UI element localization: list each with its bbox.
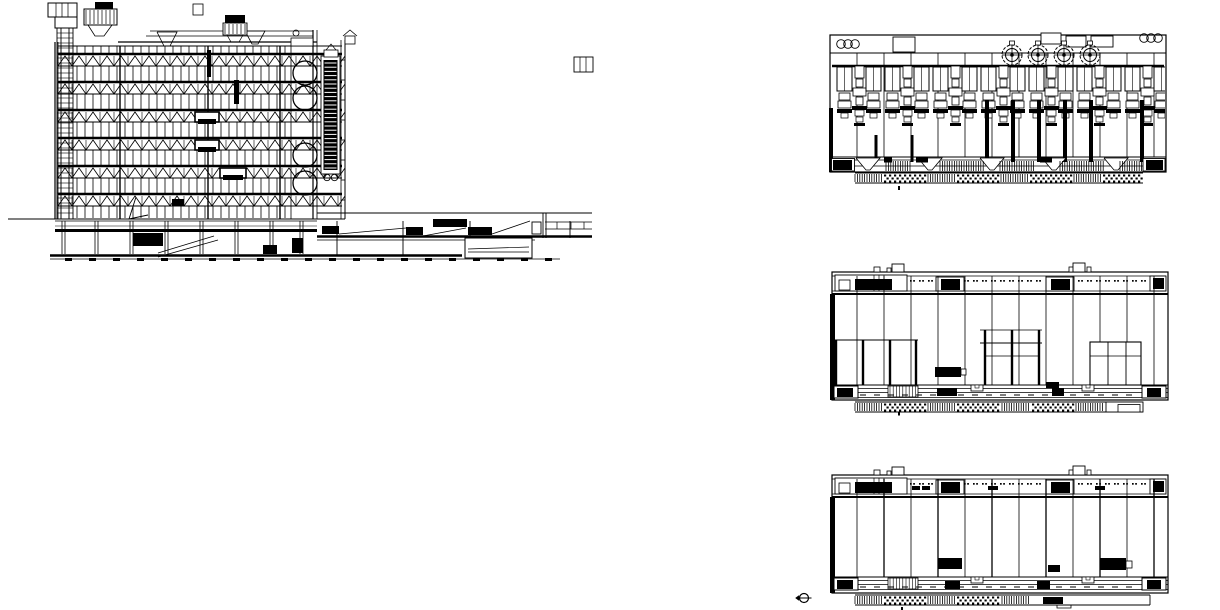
cad-drawing-sheet <box>0 0 1220 610</box>
section-hung-equipment <box>172 112 246 206</box>
lower-floor-elevation-view <box>830 466 1168 610</box>
section-structure <box>55 30 357 219</box>
upper-foundation-strip <box>855 402 1143 416</box>
roof-machinery-elevation-view <box>829 33 1169 190</box>
building-section-view <box>8 2 593 261</box>
datum-marker-icon <box>796 594 812 603</box>
cad-sheet-canvas <box>0 0 1220 610</box>
section-podium <box>317 213 592 258</box>
upper-floor-elevation-view <box>830 263 1168 416</box>
section-external-riser <box>321 44 340 181</box>
machinery-foundation-strip <box>855 173 1143 190</box>
lower-foundation-strip <box>855 595 1150 610</box>
